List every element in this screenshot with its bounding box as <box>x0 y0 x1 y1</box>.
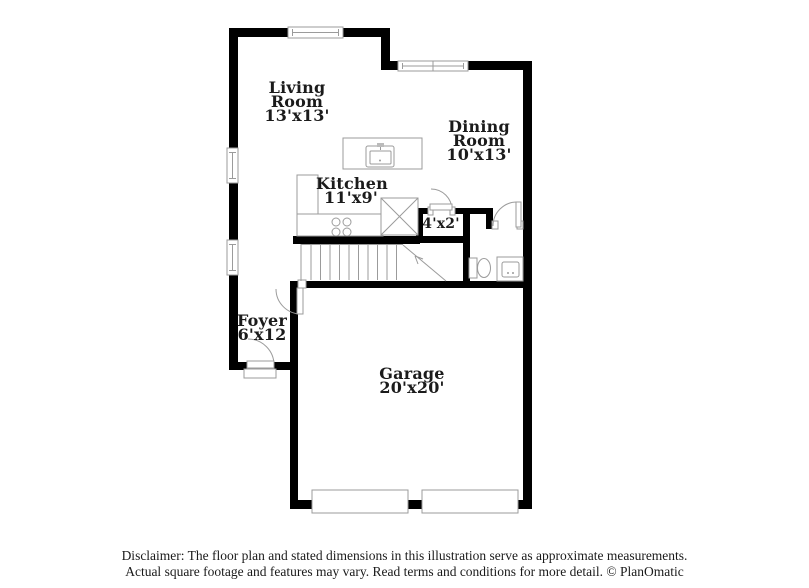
kitchen-sink-icon <box>366 143 394 167</box>
room-dimensions: 13'x13' <box>262 109 332 123</box>
room-dimensions: 20'x20' <box>377 381 447 395</box>
room-label-garage: Garage 20'x20' <box>377 367 447 395</box>
kitchen-counter-vertical <box>297 175 318 215</box>
jamb <box>298 280 306 288</box>
garage-door <box>422 490 518 513</box>
room-label-living: Living Room 13'x13' <box>262 81 332 123</box>
wall-hall-garage <box>290 281 532 288</box>
door-swing-closet <box>430 189 452 210</box>
room-dimensions: 6'x12 <box>227 328 297 342</box>
room-label-kitchen: Kitchen 11'x9' <box>316 177 386 205</box>
stairs-direction-arrow-icon <box>415 256 423 264</box>
stairs-edge <box>301 244 403 281</box>
disclaimer-line-1: Disclaimer: The floor plan and stated di… <box>0 548 809 564</box>
entry-stoop <box>244 369 276 378</box>
window <box>227 240 238 275</box>
room-dimensions: 10'x13' <box>444 148 514 162</box>
sink-vanity-icon <box>497 257 523 281</box>
wall-bath-top <box>452 208 493 214</box>
room-label-closet: 4'x2' <box>413 218 469 231</box>
stairs-break-line <box>403 245 446 281</box>
room-name: Dining Room <box>444 120 514 148</box>
window <box>288 27 343 38</box>
room-label-dining: Dining Room 10'x13' <box>444 120 514 162</box>
stair-treads <box>311 245 397 280</box>
stairs <box>301 244 446 281</box>
bathroom-fixtures <box>469 257 523 281</box>
window <box>227 148 238 183</box>
room-label-foyer: Foyer 6'x12 <box>227 314 297 342</box>
garage-door <box>312 490 408 513</box>
floor-plan-page: Living Room 13'x13' Dining Room 10'x13' … <box>0 0 809 588</box>
disclaimer: Disclaimer: The floor plan and stated di… <box>0 548 809 580</box>
wall-closet-bottom <box>416 236 470 243</box>
floor-plan-drawing <box>0 0 809 588</box>
toilet-icon <box>469 258 491 278</box>
wall-kitchen-stairs <box>293 236 420 244</box>
room-dimensions: 4'x2' <box>413 218 469 231</box>
room-dimensions: 11'x9' <box>316 191 386 205</box>
room-name: Living Room <box>262 81 332 109</box>
window <box>398 61 468 71</box>
disclaimer-line-2: Actual square footage and features may v… <box>0 564 809 580</box>
kitchen-island <box>343 138 422 169</box>
